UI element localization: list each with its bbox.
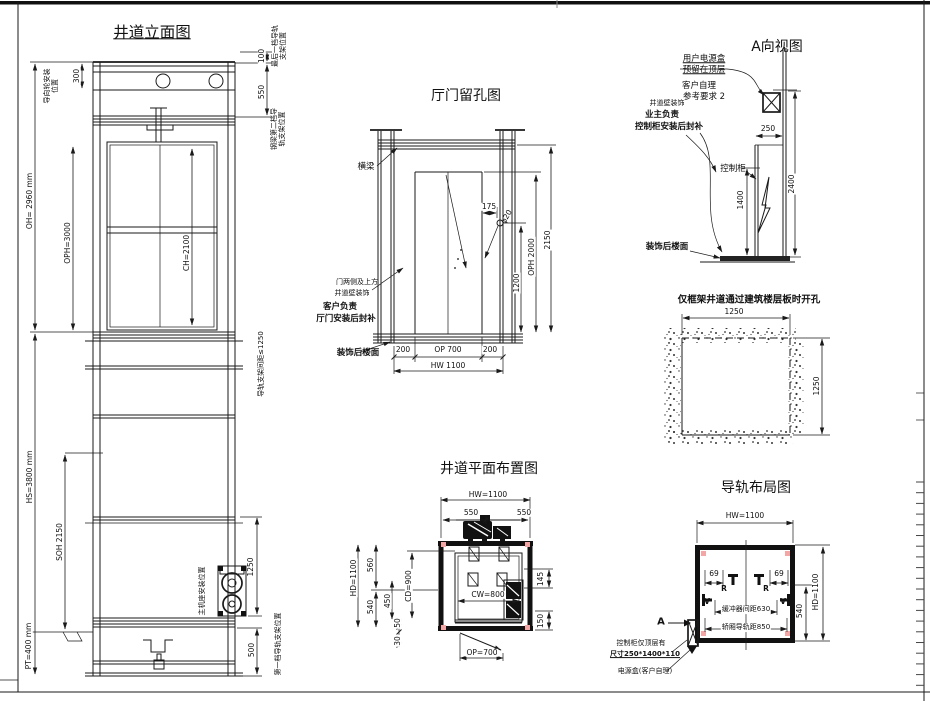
dim-1200: 1200	[513, 272, 521, 293]
dim-2400: 2400	[788, 173, 796, 194]
dim-550: 550	[258, 84, 266, 100]
dim-30: 30	[394, 635, 402, 647]
view-a-title: A向视图	[751, 40, 803, 56]
dim-oph: OPH=3000	[64, 221, 72, 264]
dim-oph-2000: OPH 2000	[528, 237, 536, 277]
dim-cw-800: CW=800	[470, 591, 505, 599]
rail-v-right: V	[780, 598, 786, 606]
rail-r-left: R	[721, 585, 727, 593]
buffer-spacing-label: 缓冲器间距630	[721, 606, 771, 614]
dim-560: 560	[367, 557, 375, 573]
beam-label: 横梁	[357, 163, 374, 173]
dim-200-left: 200	[395, 346, 411, 354]
opening-linework	[664, 314, 830, 444]
customer-label-2: 厅门安装后封补	[316, 315, 376, 325]
self-handle-label-2: 参考要求 2	[683, 93, 725, 103]
dim-50: 50	[394, 617, 402, 629]
rails-title: 导轨布局图	[721, 481, 791, 497]
dim-cd-900: CD=900	[405, 569, 413, 603]
dim-500: 500	[248, 642, 256, 658]
cabinet-size-label: 尺寸250*1400*110	[610, 651, 680, 659]
dim-1250-h: 1250	[813, 375, 821, 396]
dim-150: 150	[537, 613, 545, 629]
dim-plan-hd: HD=1100	[350, 559, 358, 598]
customer-label-1: 客户负责	[323, 303, 357, 313]
dim-100: 100	[258, 48, 266, 64]
section-a-label: A	[657, 616, 665, 627]
rail-v-left: V	[704, 598, 710, 606]
last-bracket-label: 最后一档导轨支架位置	[272, 25, 288, 67]
plan-title: 井道平面布置图	[440, 462, 538, 478]
dim-rails-hw: HW=1100	[725, 512, 765, 520]
dim-rails-hd: HD=1100	[812, 573, 820, 612]
power-box-note-label: 电源盒(客户自理)	[618, 668, 672, 676]
dim-plan-hw: HW=1100	[468, 491, 508, 499]
dim-300: 300	[73, 68, 81, 84]
dim-ch: CH=2100	[183, 234, 191, 272]
dim-oh: OH= 2960 mm	[26, 172, 34, 230]
car-rail-spacing-label: 轿厢导轨距850	[721, 624, 771, 632]
dim-pt: PT=400 mm	[25, 622, 33, 671]
dim-250: 250	[760, 125, 776, 133]
cabinet-label: 控制柜	[720, 165, 746, 175]
dim-540: 540	[367, 599, 375, 615]
hall-door-title: 厅门留孔图	[431, 89, 501, 105]
guide-wheel-label: 导向轮安装位置	[44, 68, 60, 104]
floor-label-a: 装饰后楼面	[646, 243, 689, 253]
dim-550-right: 550	[516, 509, 532, 517]
door-sides-label-1: 门两侧及上方	[336, 279, 378, 287]
beam2-bracket-label: 钢梁第二档导轨支架位置	[271, 105, 287, 153]
machine-seat-label: 主机座安装位置	[199, 567, 207, 616]
wall-decor-label: 井道壁装饰	[650, 100, 685, 108]
power-box-label-2: 预留在顶层	[683, 66, 726, 76]
plan-linework	[358, 497, 553, 661]
dim-200-right: 200	[482, 346, 498, 354]
dim-2150: 2150	[544, 229, 552, 250]
dim-1250-w: 1250	[723, 308, 744, 316]
power-box-label-1: 用户电源盒	[683, 55, 726, 65]
opening-title: 仅框架井道通过建筑楼层板时开孔	[678, 296, 821, 307]
dim-1400: 1400	[737, 189, 745, 210]
dim-rails-540: 540	[796, 603, 804, 619]
dim-hs: HS=3800 mm	[26, 450, 34, 505]
dim-op-700: OP 700	[433, 346, 462, 354]
dim-hw-1100: HW 1100	[430, 362, 467, 370]
dim-soh: SOH 2150	[56, 522, 64, 562]
dim-550-left: 550	[463, 509, 479, 517]
elevation-linework	[30, 52, 272, 676]
dim-1250: 1250	[247, 556, 255, 577]
cabinet-top-floor-label: 控制柜仅顶层有	[617, 640, 666, 648]
floor-label: 装饰后楼面	[337, 349, 380, 359]
rail-spacing-label: 导轨支架间距≤1250	[258, 331, 266, 397]
drawing-sheet: 井道立面图 300 导向轮安装位置 OH= 2960 mm OPH=3000 C…	[0, 0, 930, 701]
door-sides-label-2: 井道壁装饰	[335, 290, 370, 298]
owner-label-2: 控制柜安装后封补	[635, 123, 703, 133]
self-handle-label-1: 客户自理	[682, 82, 716, 92]
dim-69-right: 69	[773, 570, 785, 578]
elevation-title: 井道立面图	[113, 24, 191, 41]
view-a-linework	[680, 48, 801, 262]
drawing-linework	[0, 0, 930, 701]
first-bracket-label: 第一档导轨支架位置	[275, 613, 283, 676]
rails-linework	[668, 520, 830, 670]
rail-r-right: R	[763, 585, 769, 593]
dim-175: 175	[481, 203, 497, 211]
dim-450: 450	[384, 593, 392, 609]
dim-145: 145	[537, 571, 545, 587]
dim-op-700-plan: OP=700	[465, 649, 498, 657]
owner-label-1: 业主负责	[645, 111, 679, 121]
dim-69-left: 69	[708, 570, 720, 578]
